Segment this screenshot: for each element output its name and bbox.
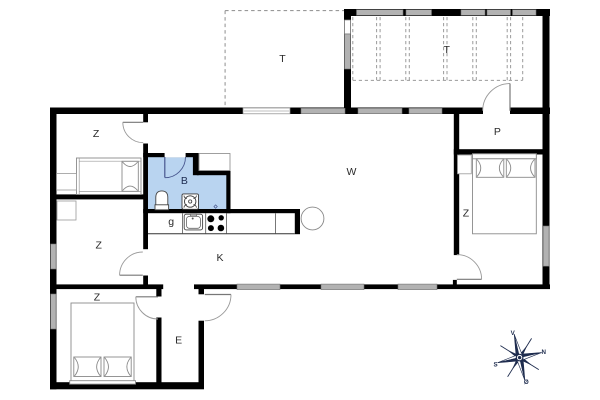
svg-text:S: S — [494, 362, 498, 369]
svg-text:Z: Z — [95, 240, 102, 252]
svg-text:T: T — [443, 44, 450, 56]
svg-text:Ø: Ø — [524, 379, 529, 386]
svg-text:T: T — [279, 53, 286, 65]
svg-text:Z: Z — [463, 207, 470, 219]
svg-text:E: E — [175, 335, 182, 347]
svg-text:Z: Z — [94, 291, 101, 303]
svg-text:N: N — [541, 349, 546, 356]
svg-text:B: B — [181, 175, 188, 187]
svg-text:P: P — [494, 126, 501, 138]
svg-text:g: g — [168, 216, 174, 228]
svg-text:W: W — [346, 166, 356, 178]
svg-text:K: K — [216, 252, 223, 264]
svg-text:Z: Z — [93, 128, 100, 140]
